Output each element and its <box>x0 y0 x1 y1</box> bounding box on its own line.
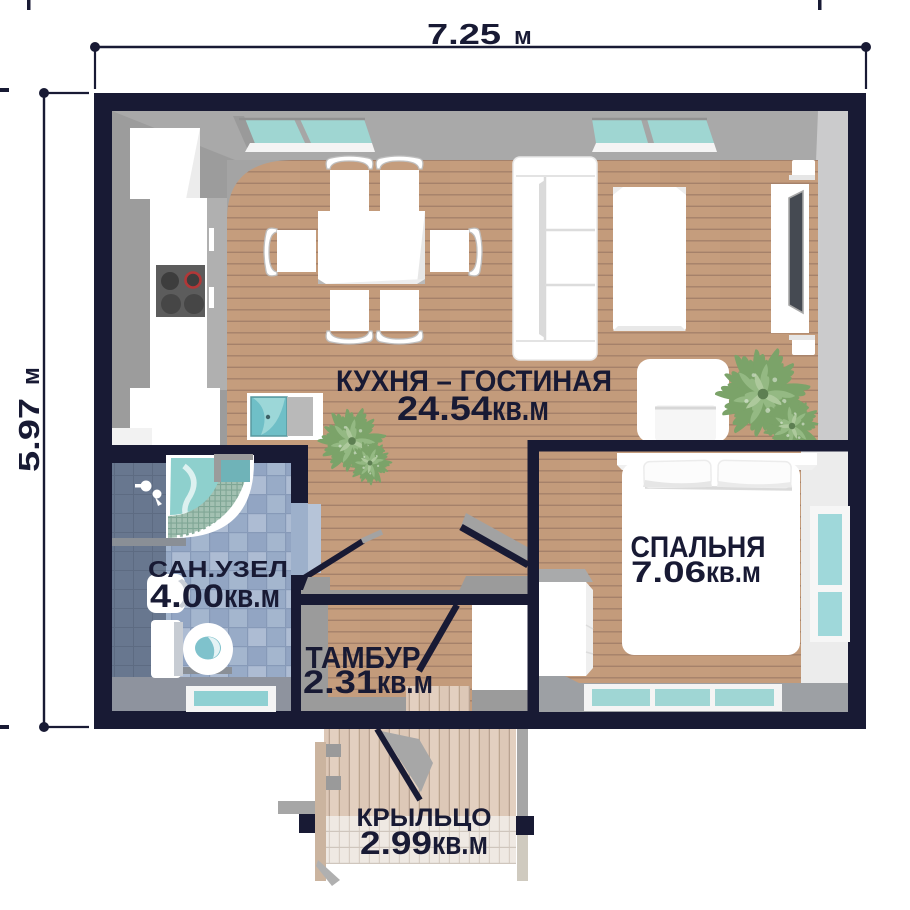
svg-text:7.06кв.м: 7.06кв.м <box>631 556 761 589</box>
svg-text:5.97м: 5.97м <box>14 367 46 472</box>
svg-text:24.54кв.м: 24.54кв.м <box>397 390 549 428</box>
svg-text:4.00кв.м: 4.00кв.м <box>150 578 280 614</box>
svg-text:2.99кв.м: 2.99кв.м <box>360 825 488 861</box>
svg-text:2.31кв.м: 2.31кв.м <box>303 664 433 700</box>
svg-text:7.25м: 7.25м <box>427 19 532 51</box>
